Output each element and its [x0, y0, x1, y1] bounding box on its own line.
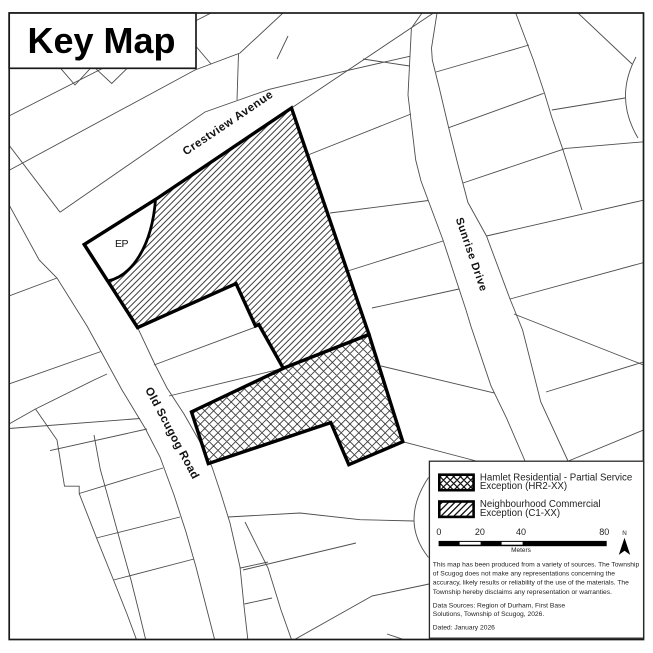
svg-text:N: N — [622, 530, 627, 537]
svg-text:Exception (C1-XX): Exception (C1-XX) — [480, 508, 560, 519]
svg-text:80: 80 — [599, 527, 609, 537]
svg-text:This map has been produced fro: This map has been produced from a variet… — [433, 561, 640, 568]
svg-text:Exception (HR2-XX): Exception (HR2-XX) — [480, 481, 567, 492]
svg-text:Township hereby disclaims any: Township hereby disclaims any representa… — [433, 589, 612, 596]
svg-text:EP: EP — [115, 238, 129, 250]
svg-text:40: 40 — [516, 527, 526, 537]
svg-text:Meters: Meters — [511, 547, 532, 554]
svg-text:Dated: January 2026: Dated: January 2026 — [433, 624, 495, 631]
svg-text:Key Map: Key Map — [28, 20, 176, 61]
svg-text:of Scugog does not make any re: of Scugog does not make any representati… — [433, 571, 615, 578]
svg-text:0: 0 — [436, 527, 441, 537]
svg-text:Data Sources: Region of Durham: Data Sources: Region of Durham, First Ba… — [433, 603, 566, 610]
svg-text:Solutions, Township of Scugog,: Solutions, Township of Scugog, 2026. — [433, 611, 545, 618]
svg-text:accuracy, likely results or re: accuracy, likely results or reliability … — [433, 580, 629, 587]
svg-text:20: 20 — [475, 527, 485, 537]
